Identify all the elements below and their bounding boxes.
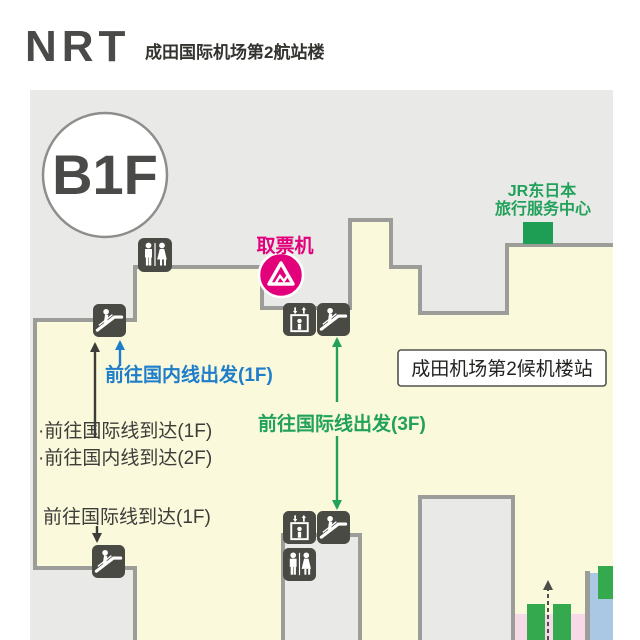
zone-pink-platform	[515, 614, 585, 640]
platform-bar-green	[598, 566, 613, 599]
jr-service-center-label-line1: JR东日本	[508, 181, 576, 200]
platform-bar-green	[553, 604, 571, 640]
restroom-icon	[283, 548, 316, 581]
escalator-icon	[92, 545, 125, 578]
escalator-icon	[317, 303, 350, 336]
airport-code: NRT	[25, 22, 130, 72]
route-domestic-arrival-bullet: ·前往国内线到达(2F)	[38, 447, 212, 469]
page-title: 成田国际机场第2航站楼	[145, 38, 324, 63]
ticket-machine-icon	[259, 253, 303, 297]
jr-service-center-marker	[523, 222, 553, 244]
escalator-icon	[93, 304, 126, 337]
floor-map: 取票机 B1F JR东日本 旅行服务中心 成田机场第2候机楼站 前往国内线出发(…	[30, 90, 613, 640]
jr-service-center-label-line2: 旅行服务中心	[495, 199, 591, 218]
elevator-icon	[283, 303, 316, 336]
ticket-machine-label: 取票机	[256, 235, 313, 257]
structure-block-right	[420, 497, 513, 640]
screenshot-page: NRT 成田国际机场第2航站楼	[0, 0, 640, 640]
route-international-departure-label: 前往国际线出发(3F)	[258, 412, 426, 435]
restroom-icon	[138, 238, 172, 272]
route-domestic-departure-label: 前往国内线出发(1F)	[105, 363, 273, 386]
route-international-arrival-bullet: ·前往国际线到达(1F)	[38, 420, 212, 442]
floor-map-canvas: 取票机 B1F JR东日本 旅行服务中心 成田机场第2候机楼站 前往国内线出发(…	[30, 90, 613, 640]
elevator-icon	[283, 511, 316, 544]
platform-bar-green	[527, 604, 545, 640]
floor-badge-label: B1F	[52, 143, 158, 206]
escalator-icon	[317, 511, 350, 544]
station-name-label: 成田机场第2候机楼站	[411, 358, 593, 380]
route-international-arrival-label: 前往国际线到达(1F)	[43, 506, 211, 528]
platform-divider-wall	[585, 571, 590, 640]
